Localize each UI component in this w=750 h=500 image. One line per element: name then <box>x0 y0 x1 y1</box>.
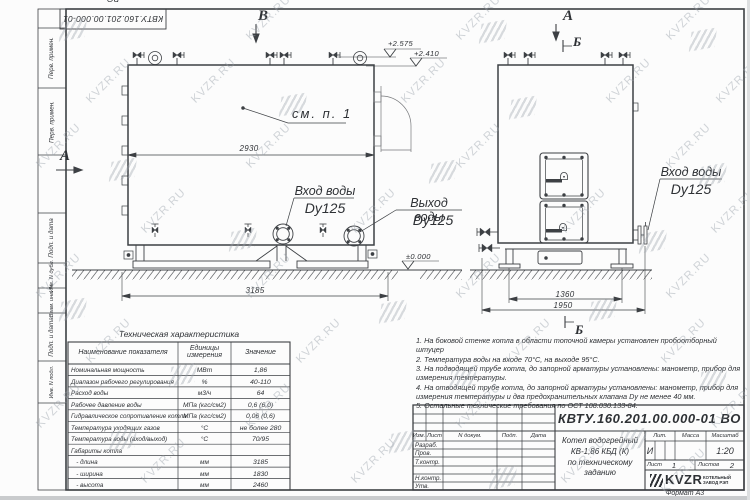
inlet-front-label: Вход воды <box>656 165 726 179</box>
table-cell: Диапазон рабочего регулирования <box>71 378 174 387</box>
table-cell: Гидравлическое сопротивление котла <box>71 412 187 421</box>
view-a-label-right: А <box>563 8 573 25</box>
table-cell: 0,06 (0,6) <box>231 412 290 421</box>
section-b-top: Б <box>573 34 581 50</box>
rev-header: Изм. <box>412 433 426 439</box>
inlet-side-label: Вход воды <box>290 184 360 198</box>
inlet-front-size: Dy125 <box>656 181 726 197</box>
scale-header: Масштаб <box>706 433 744 439</box>
lit-header: Лит. <box>645 433 675 439</box>
drawing-sheet: КВТУ.160.201.00.000-01 ВО Перв. примен. … <box>0 0 750 500</box>
see-note-callout: см. п. 1 <box>292 106 352 121</box>
table-cell: % <box>178 378 231 387</box>
rev-header: Дата <box>522 433 555 439</box>
table-cell: мм <box>178 470 231 479</box>
margin-label: Подп. и дата <box>45 213 59 263</box>
table-cell: 64 <box>231 389 290 398</box>
tb-row-label: Утв. <box>415 483 429 490</box>
dim-overall-length: 3185 <box>233 286 277 295</box>
inlet-side-size: Dy125 <box>290 200 360 216</box>
drawing-designation: КВТУ.160.201.00.000-01 ВО <box>555 407 744 431</box>
table-cell: Температура уходящих газов <box>71 424 160 433</box>
table-cell: 2460 <box>231 481 290 490</box>
note-item: 4. На отводящей трубе котла, до запорной… <box>416 384 746 402</box>
margin-label: Подп. и дата <box>45 313 59 361</box>
dim-front-overall: 1950 <box>541 301 585 310</box>
table-cell: Температура воды (вход/выход) <box>71 435 167 444</box>
rev-header: N докум. <box>443 433 497 439</box>
sheet-label: Лист <box>647 462 667 468</box>
note-item: 2. Температура воды на входе 70°С, на вы… <box>416 356 746 365</box>
note-item: 1. На боковой стенке котла в области топ… <box>416 337 746 355</box>
table-cell: Габариты котла <box>71 447 122 456</box>
tb-row-label: Разраб. <box>415 442 437 449</box>
table-cell: 70/95 <box>231 435 290 444</box>
top-stamp-designation: КВТУ.160.201.00.000-01 ВО <box>60 9 166 29</box>
view-a-label-left: А <box>60 148 70 165</box>
document-name: Котел водогрейный КВ-1,86 КБД (К) по тех… <box>556 436 644 479</box>
rev-header: Подп. <box>497 433 522 439</box>
spec-header-value: Значение <box>231 349 290 356</box>
table-cell: мм <box>178 458 231 467</box>
table-cell: - длина <box>71 458 98 467</box>
table-cell: 1,86 <box>231 366 290 375</box>
elevation-valve-top: +2.575 <box>388 39 413 48</box>
scale-value: 1:20 <box>706 446 744 456</box>
sheets-label: Листов <box>698 462 724 468</box>
lit-value: И <box>645 446 655 456</box>
note-item: 3. На подводящей трубе котла, до запорно… <box>416 365 746 383</box>
table-cell: °С <box>178 424 231 433</box>
elevation-flange-top: +2.410 <box>414 49 439 58</box>
table-cell: 40-110 <box>231 378 290 387</box>
table-cell: не более 280 <box>231 424 290 433</box>
table-cell: м3/ч <box>178 389 231 398</box>
dim-body-width: 2930 <box>227 144 271 153</box>
dim-front-width: 1360 <box>543 290 587 299</box>
page-bottom-edge <box>0 496 750 500</box>
margin-label: Перв. примен. <box>45 88 59 155</box>
table-cell: МПа (кгс/см2) <box>178 401 231 410</box>
technical-notes: 1. На боковой стенке котла в области топ… <box>416 337 746 412</box>
table-cell: - ширина <box>71 470 103 479</box>
company-subtitle: КОТЕЛЬНЫЙ ЗАВОД РЭП <box>703 475 743 486</box>
margin-label: Инв. N подл. <box>45 361 59 403</box>
sheets-value: 2 <box>726 461 738 470</box>
table-cell: Расход воды <box>71 389 108 398</box>
table-cell: Номинальная мощность <box>71 366 145 375</box>
margin-label: Перв. примен. <box>45 28 59 88</box>
table-cell: Рабочее давление воды <box>71 401 142 410</box>
table-cell: °С <box>178 435 231 444</box>
mass-header: Масса <box>675 433 706 439</box>
tb-row-label: Н.контр. <box>415 475 441 482</box>
table-cell: 3185 <box>231 458 290 467</box>
table-cell: мм <box>178 481 231 490</box>
kvzr-logo-icon <box>650 474 663 487</box>
elevation-ground: ±0.000 <box>406 252 431 261</box>
tb-row-label: Пров. <box>415 450 431 457</box>
rev-header: Лист <box>426 433 443 439</box>
spec-table-title: Техническая характеристика <box>68 329 290 339</box>
tb-row-label: Т.контр. <box>415 459 440 466</box>
table-cell: 1830 <box>231 470 290 479</box>
sheet-value: 1 <box>668 461 680 470</box>
table-cell: МПа (кгс/см2) <box>178 412 231 421</box>
table-cell: МВт <box>178 366 231 375</box>
spec-header-unit: Единицы измерения <box>178 345 231 359</box>
table-cell: - высота <box>71 481 103 490</box>
spec-header-name: Наименование показателя <box>70 349 176 356</box>
outlet-side-size: Dy125 <box>398 212 468 228</box>
table-cell: 0,6 (6,0) <box>231 401 290 410</box>
company-logo-text: KVZR <box>665 472 702 487</box>
view-b-label: В <box>258 8 268 25</box>
